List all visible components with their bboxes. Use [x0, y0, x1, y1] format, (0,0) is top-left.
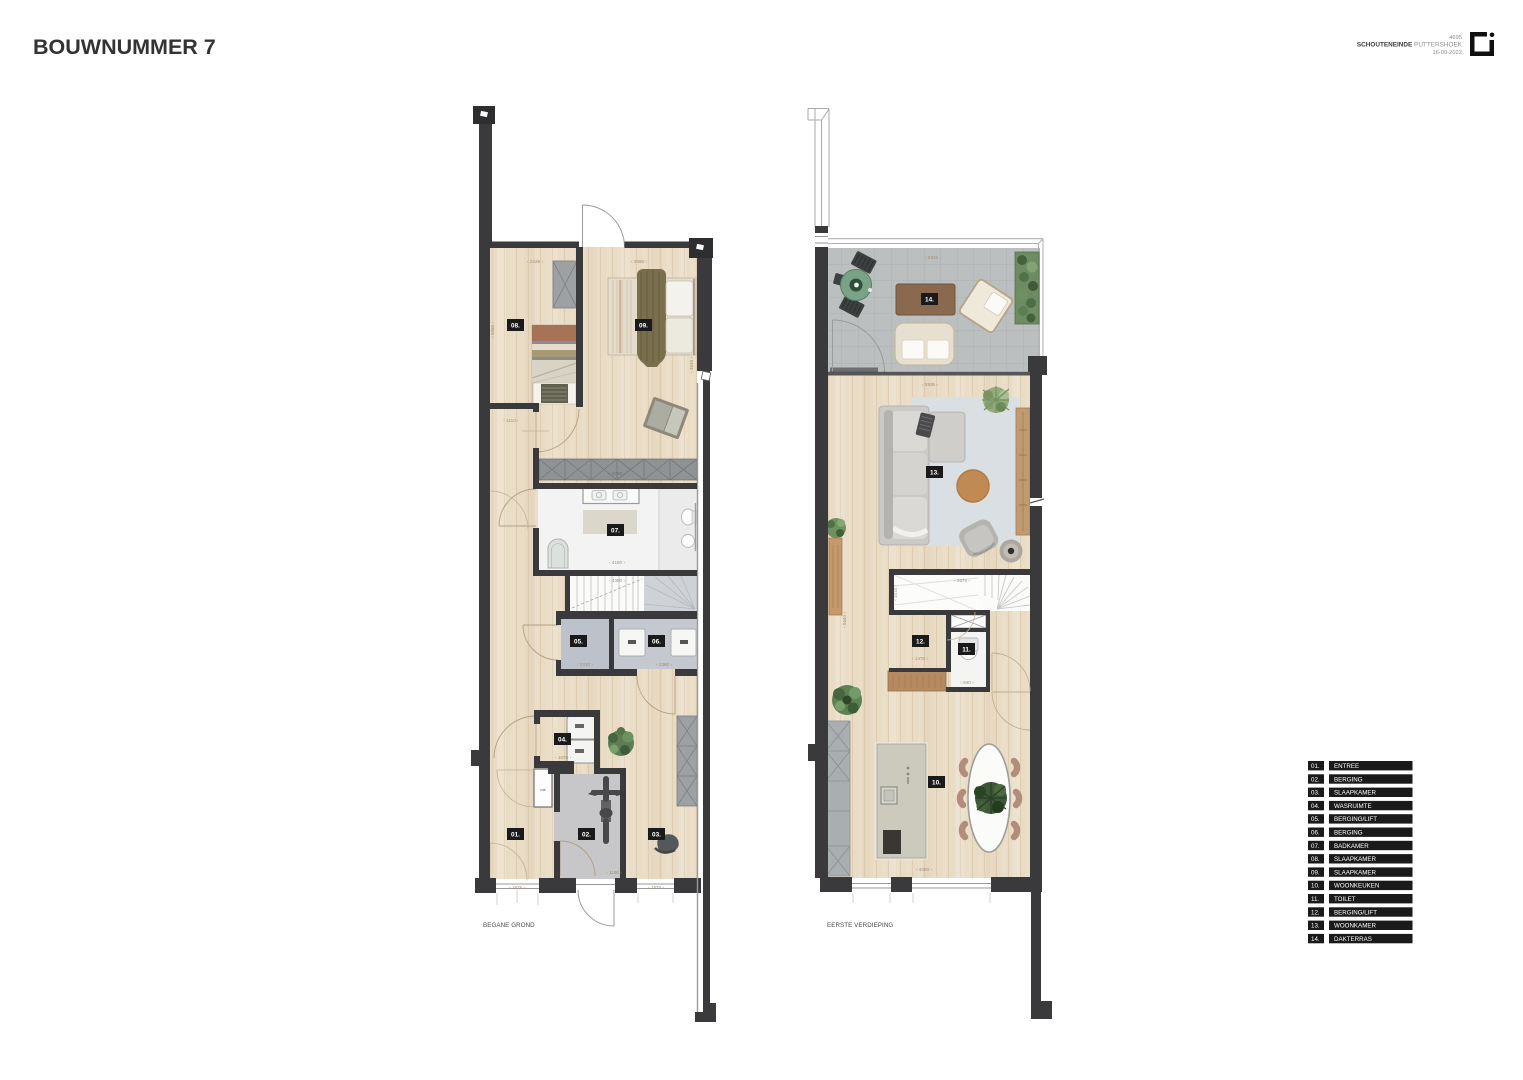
svg-text:‹ 4180 ›: ‹ 4180 › [609, 560, 625, 565]
svg-text:05.: 05. [574, 639, 583, 646]
svg-text:05.: 05. [1311, 816, 1320, 823]
svg-text:BADKAMER: BADKAMER [1334, 843, 1369, 850]
svg-text:‹ 5936 ›: ‹ 5936 › [922, 382, 938, 387]
svg-text:‹ 1070 ›: ‹ 1070 › [555, 755, 571, 760]
svg-text:‹ 1190 ›: ‹ 1190 › [606, 870, 622, 875]
svg-text:07.: 07. [1311, 843, 1320, 850]
svg-text:BERGING: BERGING [1334, 830, 1363, 837]
svg-text:SLAAPKAMER: SLAAPKAMER [1334, 869, 1376, 876]
svg-text:02.: 02. [1311, 776, 1320, 783]
svg-text:11.: 11. [1311, 896, 1319, 903]
svg-text:10.: 10. [932, 780, 941, 787]
svg-text:‹ 3648 ›: ‹ 3648 › [689, 357, 694, 373]
svg-text:SLAAPKAMER: SLAAPKAMER [1334, 790, 1376, 797]
svg-text:06.: 06. [652, 639, 661, 646]
svg-text:03.: 03. [652, 832, 661, 839]
svg-text:ENTREE: ENTREE [1334, 763, 1359, 770]
svg-text:mk: mk [540, 787, 545, 792]
svg-text:BERGING/LIFT: BERGING/LIFT [1334, 909, 1377, 916]
svg-text:BERGING: BERGING [1334, 776, 1363, 783]
svg-text:4695: 4695 [1449, 35, 1462, 41]
svg-text:09.: 09. [1311, 869, 1320, 876]
svg-text:SLAAPKAMER: SLAAPKAMER [1334, 856, 1376, 863]
svg-text:02.: 02. [582, 832, 591, 839]
svg-text:‹ 1875 ›: ‹ 1875 › [648, 885, 664, 890]
svg-text:16-09-2022: 16-09-2022 [1432, 50, 1462, 56]
svg-text:01.: 01. [1311, 763, 1320, 770]
svg-text:‹ 940 ›: ‹ 940 › [960, 680, 974, 685]
svg-text:‹ 3676 ›: ‹ 3676 › [954, 578, 970, 583]
svg-text:07.: 07. [611, 528, 620, 535]
svg-text:14.: 14. [1311, 936, 1320, 943]
svg-text:‹ 5936 ›: ‹ 5936 › [925, 255, 941, 260]
svg-text:08.: 08. [511, 323, 520, 330]
svg-text:‹ 4780 ›: ‹ 4780 › [609, 471, 625, 476]
svg-text:03.: 03. [1311, 790, 1320, 797]
svg-text:‹ 1110 ›: ‹ 1110 › [503, 418, 519, 423]
svg-text:EERSTE VERDIEPING: EERSTE VERDIEPING [827, 922, 893, 929]
svg-text:BOUWNUMMER 7: BOUWNUMMER 7 [33, 35, 216, 59]
svg-text:‹ 2380 ›: ‹ 2380 › [656, 662, 672, 667]
svg-text:BERGING/LIFT: BERGING/LIFT [1334, 816, 1377, 823]
svg-text:01.: 01. [511, 832, 520, 839]
svg-text:‹ 4080 ›: ‹ 4080 › [916, 867, 932, 872]
svg-text:‹ 5640 ›: ‹ 5640 › [842, 612, 847, 628]
svg-text:10.: 10. [1311, 883, 1320, 890]
svg-text:‹ 5080 ›: ‹ 5080 › [490, 322, 495, 338]
svg-text:WOONKAMER: WOONKAMER [1334, 923, 1376, 930]
svg-text:‹ 2410 ›: ‹ 2410 › [577, 662, 593, 667]
svg-text:SCHOUTENEINDE PUTTERSHOEK: SCHOUTENEINDE PUTTERSHOEK [1357, 42, 1463, 49]
svg-text:‹ 1875 ›: ‹ 1875 › [509, 885, 525, 890]
svg-text:DAKTERRAS: DAKTERRAS [1334, 936, 1372, 943]
svg-text:‹ 3080 ›: ‹ 3080 › [631, 259, 647, 264]
svg-text:WOONKEUKEN: WOONKEUKEN [1334, 883, 1379, 890]
svg-text:12.: 12. [916, 639, 925, 646]
svg-text:08.: 08. [1311, 856, 1320, 863]
svg-text:‹ 1470 ›: ‹ 1470 › [912, 656, 928, 661]
svg-text:‹ 2226 ›: ‹ 2226 › [527, 259, 543, 264]
svg-text:04.: 04. [1311, 803, 1320, 810]
svg-text:WASRUIMTE: WASRUIMTE [1334, 803, 1372, 810]
svg-text:13.: 13. [930, 470, 939, 477]
svg-text:06.: 06. [1311, 830, 1320, 837]
svg-text:‹ 1010 ›: ‹ 1010 › [893, 585, 898, 601]
svg-text:BEGANE GROND: BEGANE GROND [483, 922, 535, 929]
svg-text:11.: 11. [962, 647, 971, 654]
svg-text:TOILET: TOILET [1334, 896, 1356, 903]
svg-text:09.: 09. [639, 323, 648, 330]
svg-text:12.: 12. [1311, 909, 1320, 916]
svg-text:13.: 13. [1311, 923, 1320, 930]
svg-text:04.: 04. [558, 737, 567, 744]
svg-text:‹ 4380 ›: ‹ 4380 › [609, 578, 625, 583]
svg-text:14.: 14. [925, 297, 934, 304]
